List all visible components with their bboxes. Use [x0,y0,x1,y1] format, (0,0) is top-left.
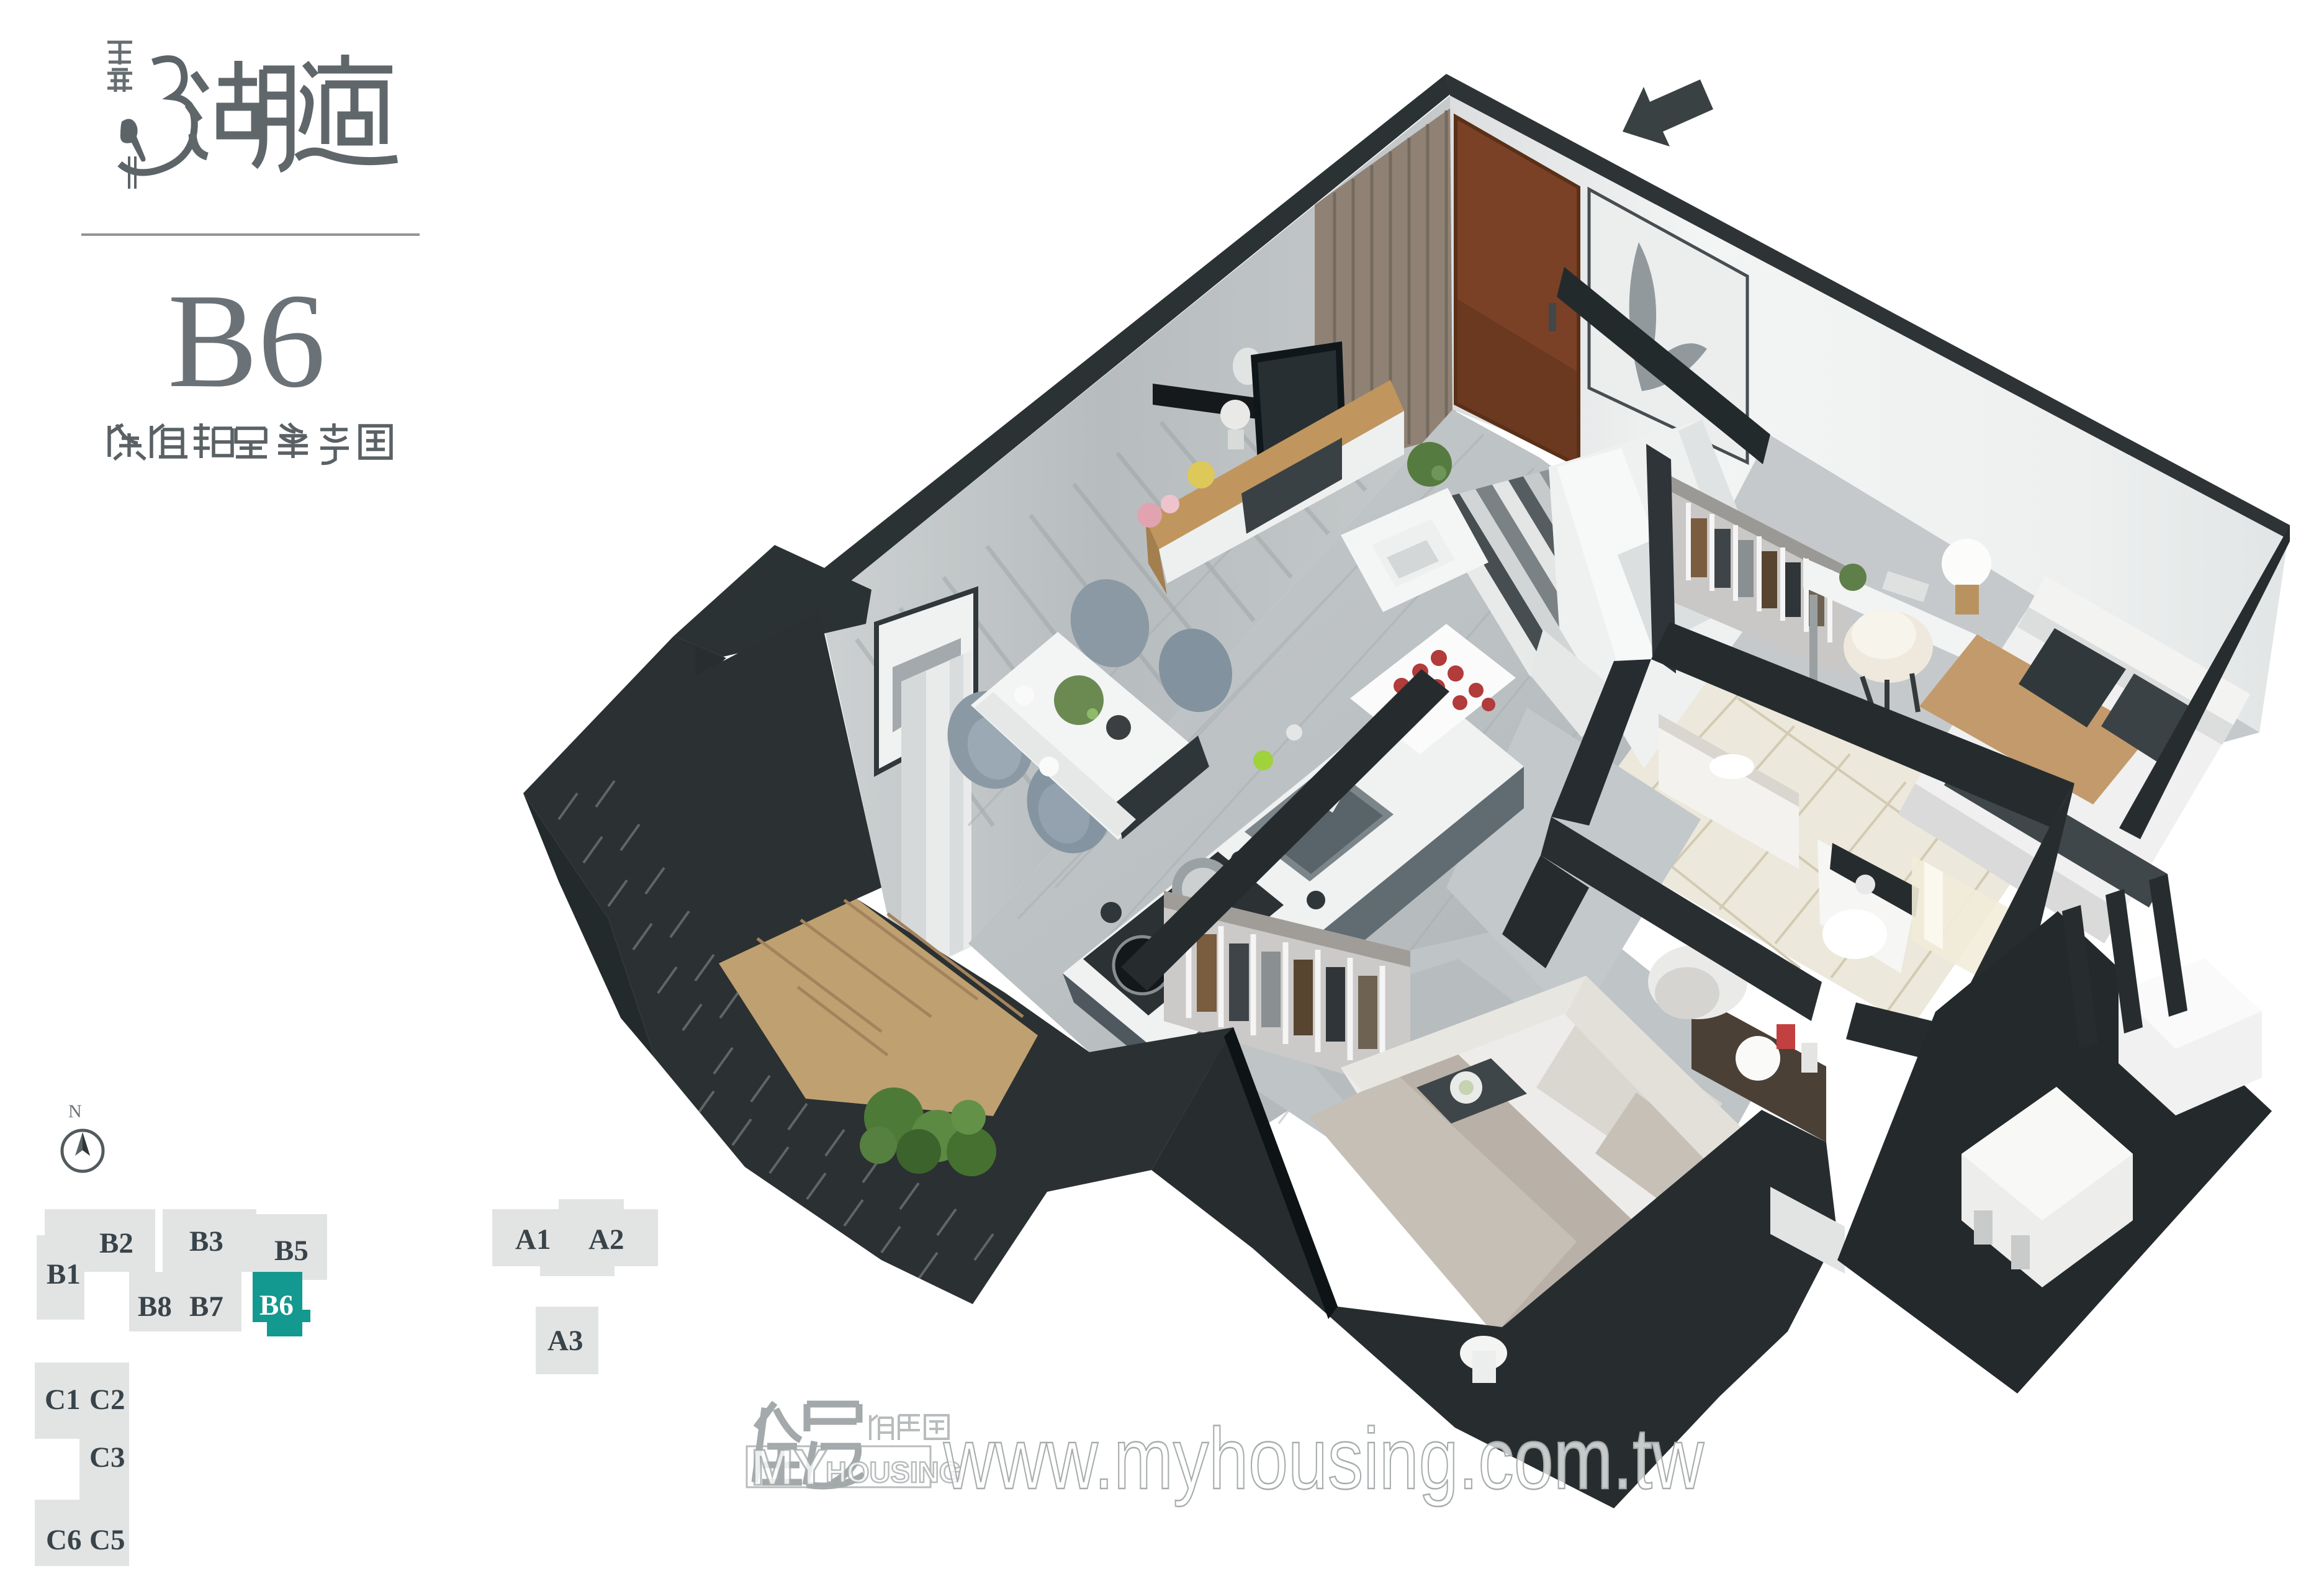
svg-text:B6: B6 [168,266,325,416]
svg-text:B1: B1 [47,1258,81,1290]
svg-text:MY: MY [751,1439,827,1496]
svg-text:B8: B8 [138,1290,172,1323]
svg-text:C3: C3 [89,1441,125,1474]
svg-text:A2: A2 [588,1223,624,1256]
svg-text:www.myhousing.com.tw: www.myhousing.com.tw [943,1410,1705,1507]
svg-text:C2: C2 [89,1384,125,1416]
svg-text:B2: B2 [99,1227,133,1259]
svg-text:C6: C6 [46,1524,81,1556]
svg-text:C5: C5 [89,1524,125,1556]
svg-text:N: N [68,1101,82,1122]
svg-text:HOUSING: HOUSING [826,1456,962,1488]
svg-text:B6: B6 [259,1289,294,1322]
svg-text:C1: C1 [45,1384,80,1416]
svg-text:B7: B7 [189,1290,223,1323]
svg-text:B5: B5 [274,1235,309,1267]
svg-text:A1: A1 [515,1223,551,1256]
svg-text:A3: A3 [547,1325,583,1357]
svg-text:B3: B3 [189,1225,223,1258]
